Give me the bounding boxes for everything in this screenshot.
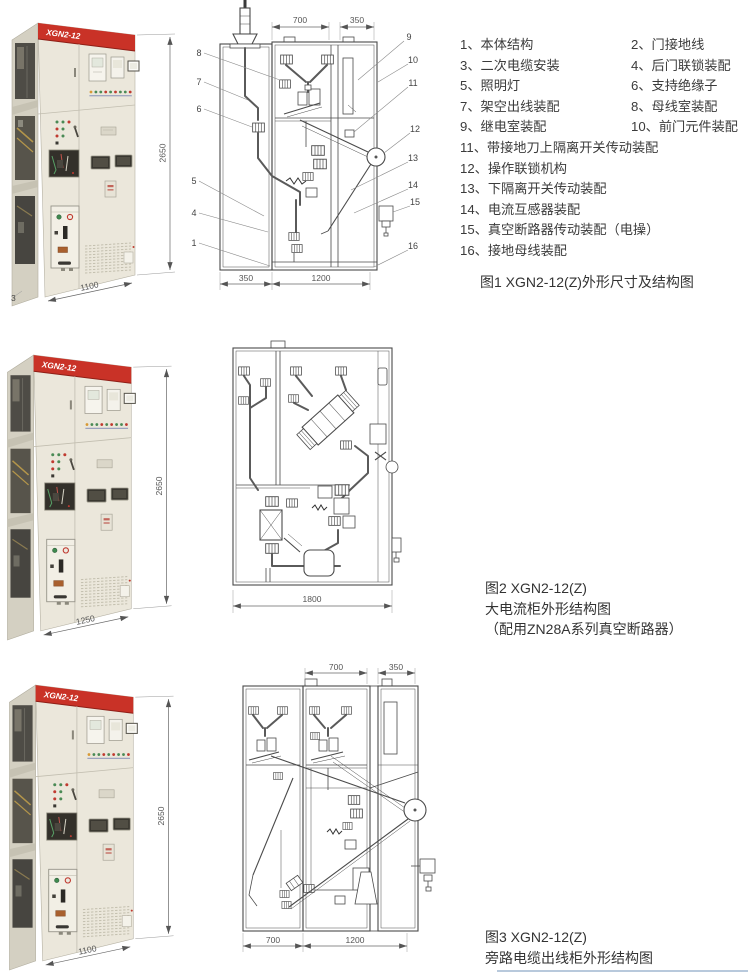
inclined-breaker — [295, 389, 368, 498]
overhead-bushing — [230, 0, 260, 48]
fig2-cabinet-photo: XGN2-12 — [0, 342, 180, 642]
parts-item: 13、下隔离开关传动装配 — [460, 179, 607, 200]
operating-mechanism-box — [47, 539, 75, 604]
callouts-left: 8 7 6 5 4 1 — [191, 48, 280, 266]
cabinet-side-face — [7, 355, 33, 640]
inspection-window — [45, 483, 75, 510]
height-dim-label: 2650 — [154, 476, 164, 495]
parts-row: 11、带接地刀上隔离开关传动装配 — [460, 138, 748, 159]
middle-bay — [304, 707, 377, 904]
parts-row: 1、本体结构2、门接地线 — [460, 35, 748, 56]
svg-text:14: 14 — [408, 180, 418, 190]
parts-row: 16、接地母线装配 — [460, 241, 748, 262]
top-dimensions: 700 350 — [305, 662, 415, 684]
dim-350-bottom: 350 — [239, 273, 253, 283]
svg-text:16: 16 — [408, 241, 418, 251]
cabinet-front-face: XGN2-12 — [34, 355, 136, 631]
dim-700-bottom: 700 — [266, 935, 280, 945]
fig1-structure-drawing: 700 350 350 1200 8 7 6 5 4 1 9 10 11 12 … — [188, 0, 458, 305]
breaker-assembly — [304, 485, 355, 576]
operating-mechanism-box — [49, 869, 77, 934]
dim-1200: 1200 — [312, 273, 331, 283]
cabinet-front-face: XGN2-12 — [36, 685, 138, 961]
current-transformer-stack — [286, 121, 326, 232]
height-dimension: 2650 — [137, 34, 175, 275]
parts-item: 10、前门元件装配 — [631, 117, 738, 138]
fig2-caption: 图2 XGN2-12(Z) 大电流柜外形结构图 （配用ZN28A系列真空断路器） — [485, 578, 683, 640]
parts-row: 5、照明灯6、支持绝缘子 — [460, 76, 748, 97]
operating-mechanism — [379, 206, 393, 236]
cable-terminal — [289, 233, 302, 262]
svg-text:12: 12 — [410, 124, 420, 134]
height-dim-label: 2650 — [158, 143, 168, 162]
svg-text:10: 10 — [408, 55, 418, 65]
bottom-dimensions: 350 1200 — [220, 272, 370, 290]
parts-item: 16、接地母线装配 — [460, 241, 567, 262]
svg-text:7: 7 — [196, 77, 201, 87]
parts-row: 14、电流互感器装配 — [460, 200, 748, 221]
parts-row: 3、二次电缆安装4、后门联锁装配 — [460, 56, 748, 77]
dim-700-top: 700 — [329, 662, 343, 672]
dim-350: 350 — [350, 15, 364, 25]
fig3-structure-drawing: 700 350 700 1200 — [215, 660, 465, 972]
parts-row: 9、继电室装配10、前门元件装配 — [460, 117, 748, 138]
svg-text:1: 1 — [191, 238, 196, 248]
relay-compartment — [343, 58, 356, 137]
cabinet-outline — [243, 679, 418, 931]
parts-list: 1、本体结构2、门接地线 3、二次电缆安装4、后门联锁装配 5、照明灯6、支持绝… — [460, 35, 748, 262]
svg-text:8: 8 — [196, 48, 201, 58]
parts-row: 12、操作联锁机构 — [460, 159, 748, 180]
operating-mechanism-box — [51, 206, 79, 271]
disconnector-assembly — [275, 85, 374, 121]
corner-label: 3 — [11, 293, 16, 303]
inspection-window — [49, 150, 79, 177]
fig3-caption-line1: 图3 XGN2-12(Z) — [485, 927, 653, 948]
page-bottom-rule — [497, 970, 748, 972]
left-bay — [246, 707, 303, 909]
cabinet-side-face — [9, 685, 35, 970]
svg-text:6: 6 — [196, 104, 201, 114]
svg-text:9: 9 — [406, 32, 411, 42]
cabinet-side-face — [12, 23, 38, 306]
fig2-structure-drawing: 1800 — [200, 338, 425, 633]
parts-item: 6、支持绝缘子 — [631, 76, 717, 97]
parts-item: 1、本体结构 — [460, 35, 631, 56]
callouts-right: 9 10 11 12 13 14 15 16 — [351, 32, 420, 267]
fig2-caption-line1: 图2 XGN2-12(Z) — [485, 578, 683, 599]
svg-text:15: 15 — [410, 197, 420, 207]
cabinet-front-face: XGN2-12 — [38, 23, 139, 297]
parts-item: 14、电流互感器装配 — [460, 200, 580, 221]
fig3-cabinet-photo: XGN2-12 — [2, 672, 182, 972]
svg-text:5: 5 — [191, 176, 196, 186]
fig1-caption: 图1 XGN2-12(Z)外形尺寸及结构图 — [480, 272, 694, 292]
parts-row: 7、架空出线装配8、母线室装配 — [460, 97, 748, 118]
right-section — [370, 702, 435, 891]
fig3-caption: 图3 XGN2-12(Z) 旁路电缆出线柜外形结构图 — [485, 927, 653, 968]
parts-row: 15、真空断路器传动装配（电操） — [460, 220, 748, 241]
fig3-caption-line2: 旁路电缆出线柜外形结构图 — [485, 948, 653, 969]
dim-1800: 1800 — [303, 594, 322, 604]
height-dimension: 2650 — [133, 366, 171, 609]
fig1-cabinet-photo: XGN2-12 — [5, 10, 183, 308]
parts-item: 2、门接地线 — [631, 35, 704, 56]
inspection-window — [47, 813, 77, 840]
svg-text:11: 11 — [408, 78, 417, 88]
right-wall-fittings — [370, 368, 401, 562]
bottom-dimensions: 700 1200 — [243, 933, 407, 952]
parts-item: 9、继电室装配 — [460, 117, 631, 138]
svg-text:13: 13 — [408, 153, 418, 163]
parts-item: 3、二次电缆安装 — [460, 56, 631, 77]
parts-item: 12、操作联锁机构 — [460, 159, 567, 180]
top-dimensions: 700 350 — [272, 15, 374, 40]
dim-700: 700 — [293, 15, 307, 25]
fig2-caption-line2: 大电流柜外形结构图 — [485, 599, 683, 620]
fig2-caption-line3: （配用ZN28A系列真空断路器） — [485, 619, 683, 640]
parts-row: 13、下隔离开关传动装配 — [460, 179, 748, 200]
dim-1200-bottom: 1200 — [346, 935, 365, 945]
parts-item: 4、后门联锁装配 — [631, 56, 731, 77]
svg-text:4: 4 — [191, 208, 196, 218]
parts-item: 15、真空断路器传动装配（电操） — [460, 220, 659, 241]
parts-item: 5、照明灯 — [460, 76, 631, 97]
height-dimension: 2650 — [135, 696, 173, 939]
parts-item: 8、母线室装配 — [631, 97, 717, 118]
bottom-dimension: 1800 — [233, 590, 392, 613]
height-dim-label: 2650 — [156, 806, 166, 825]
catalog-page: XGN2-12 — [0, 0, 748, 974]
parts-item: 7、架空出线装配 — [460, 97, 631, 118]
dim-350-top: 350 — [389, 662, 403, 672]
parts-item: 11、带接地刀上隔离开关传动装配 — [460, 138, 658, 159]
